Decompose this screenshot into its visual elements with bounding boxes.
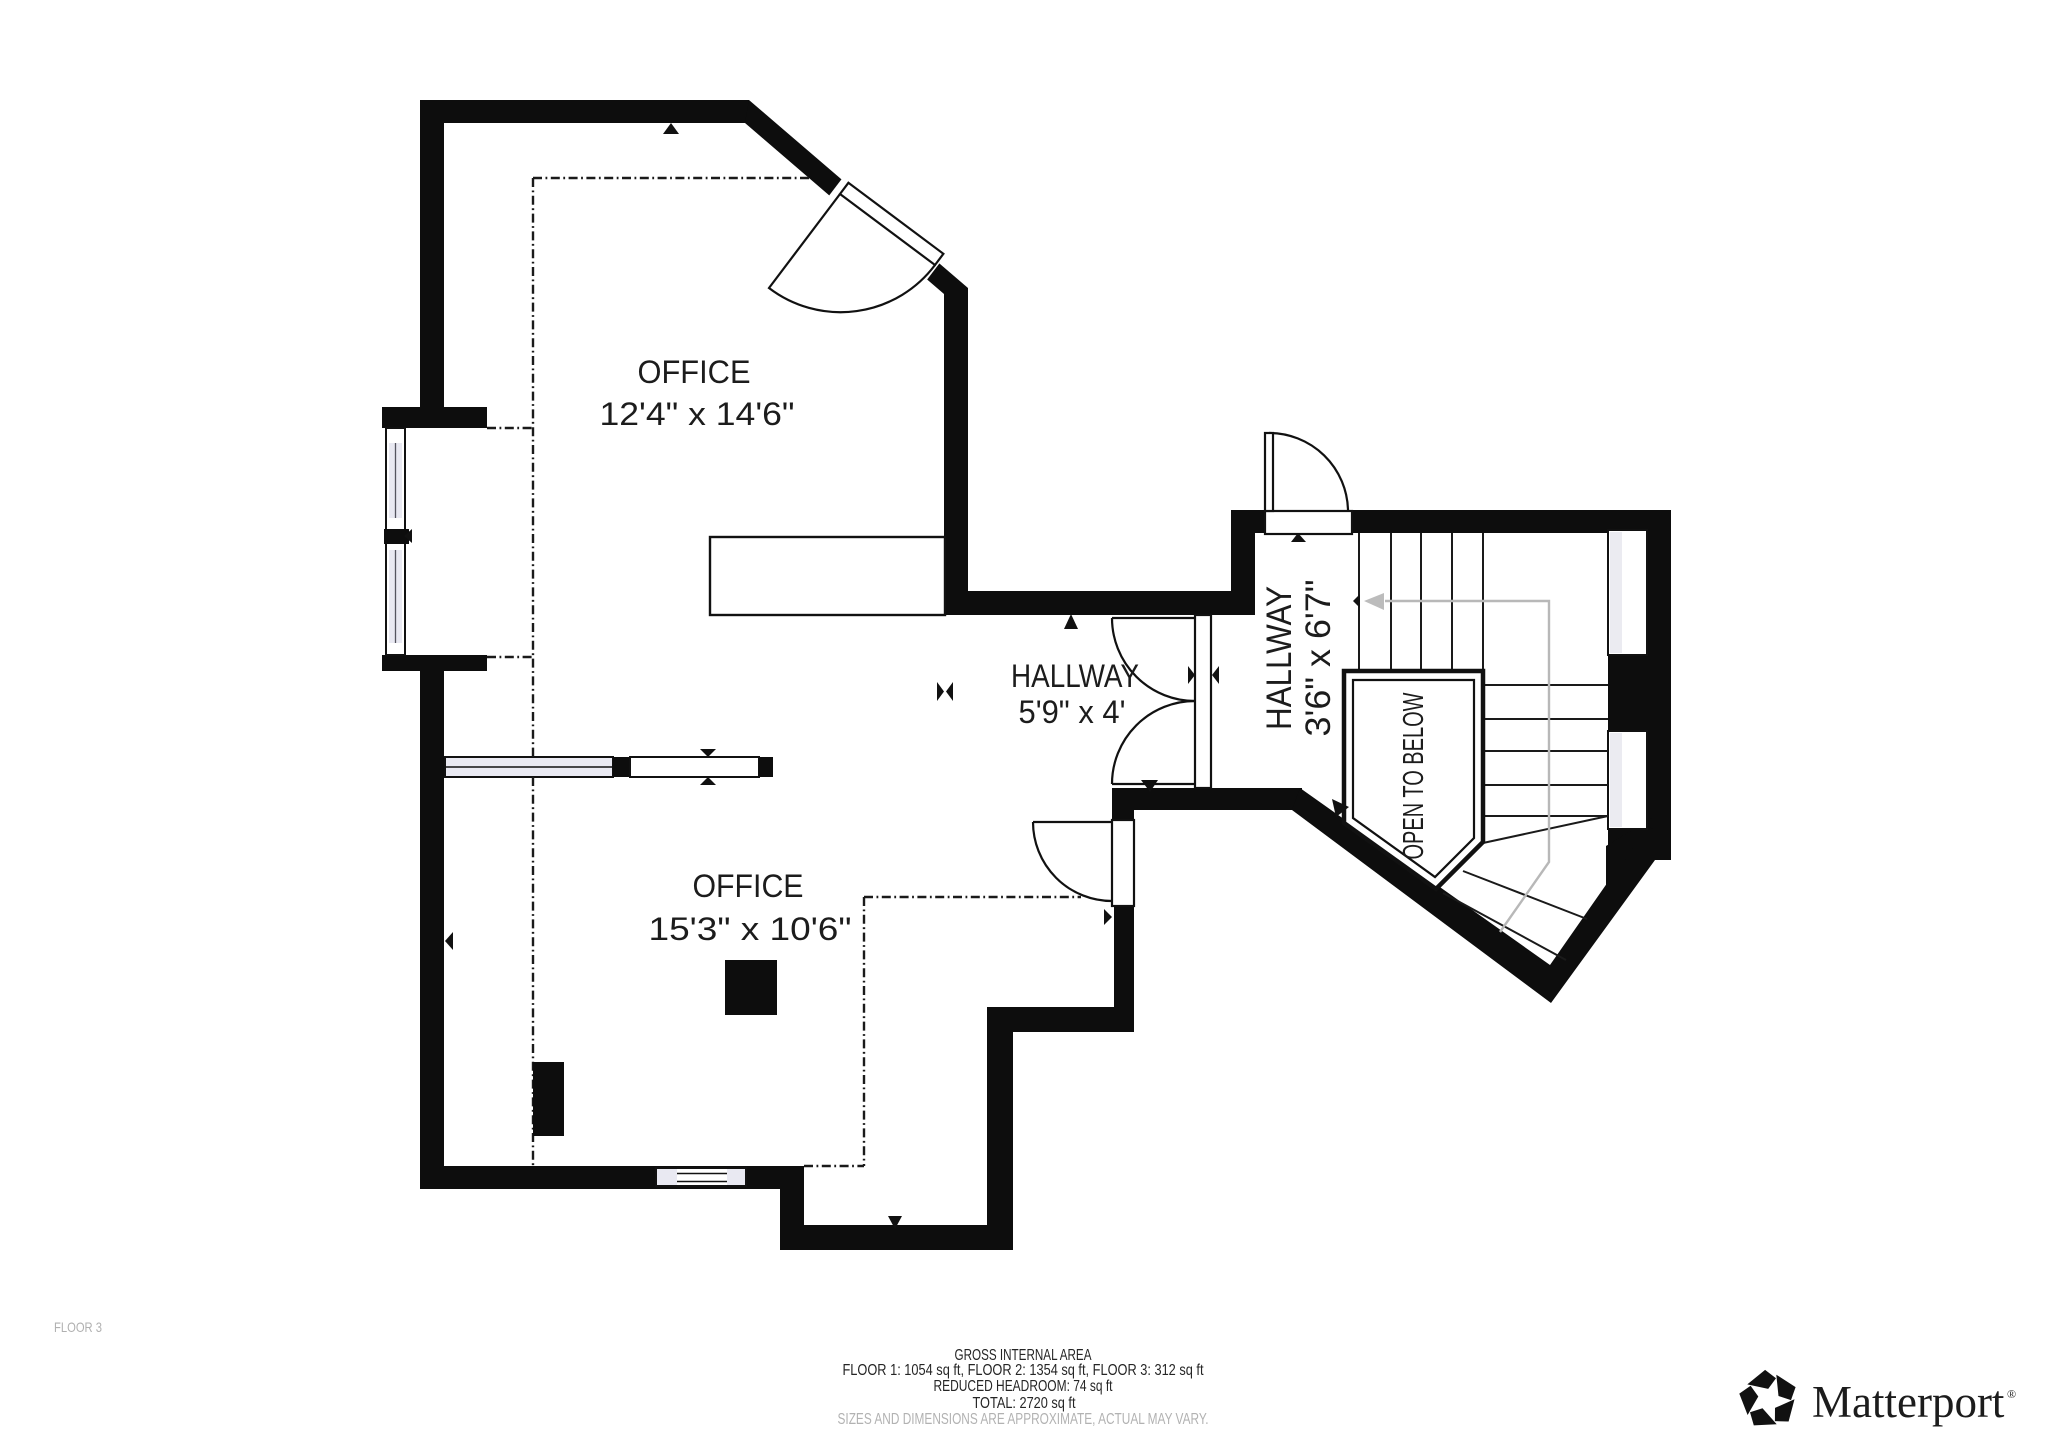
svg-text:12'4" x 14'6": 12'4" x 14'6"	[600, 396, 795, 432]
svg-text:OFFICE: OFFICE	[693, 868, 804, 904]
svg-text:TOTAL: 2720 sq ft: TOTAL: 2720 sq ft	[973, 1395, 1077, 1412]
svg-text:HALLWAY: HALLWAY	[1260, 586, 1299, 730]
svg-text:OFFICE: OFFICE	[638, 354, 751, 390]
svg-text:HALLWAY: HALLWAY	[1011, 658, 1139, 694]
svg-text:OPEN TO BELOW: OPEN TO BELOW	[1398, 692, 1430, 859]
svg-text:®: ®	[2007, 1387, 2016, 1401]
svg-text:REDUCED HEADROOM: 74 sq ft: REDUCED HEADROOM: 74 sq ft	[934, 1378, 1114, 1395]
svg-text:SIZES AND DIMENSIONS ARE APPRO: SIZES AND DIMENSIONS ARE APPROXIMATE, AC…	[838, 1411, 1209, 1428]
svg-text:FLOOR 1: 1054 sq ft, FLOOR 2:: FLOOR 1: 1054 sq ft, FLOOR 2: 1354 sq ft…	[843, 1362, 1205, 1379]
svg-text:15'3" x 10'6": 15'3" x 10'6"	[649, 911, 852, 947]
svg-text:Matterport: Matterport	[1812, 1377, 2005, 1427]
svg-text:5'9" x 4': 5'9" x 4'	[1019, 694, 1126, 730]
svg-text:FLOOR 3: FLOOR 3	[54, 1319, 102, 1335]
svg-text:3'6" x 6'7": 3'6" x 6'7"	[1299, 580, 1338, 737]
